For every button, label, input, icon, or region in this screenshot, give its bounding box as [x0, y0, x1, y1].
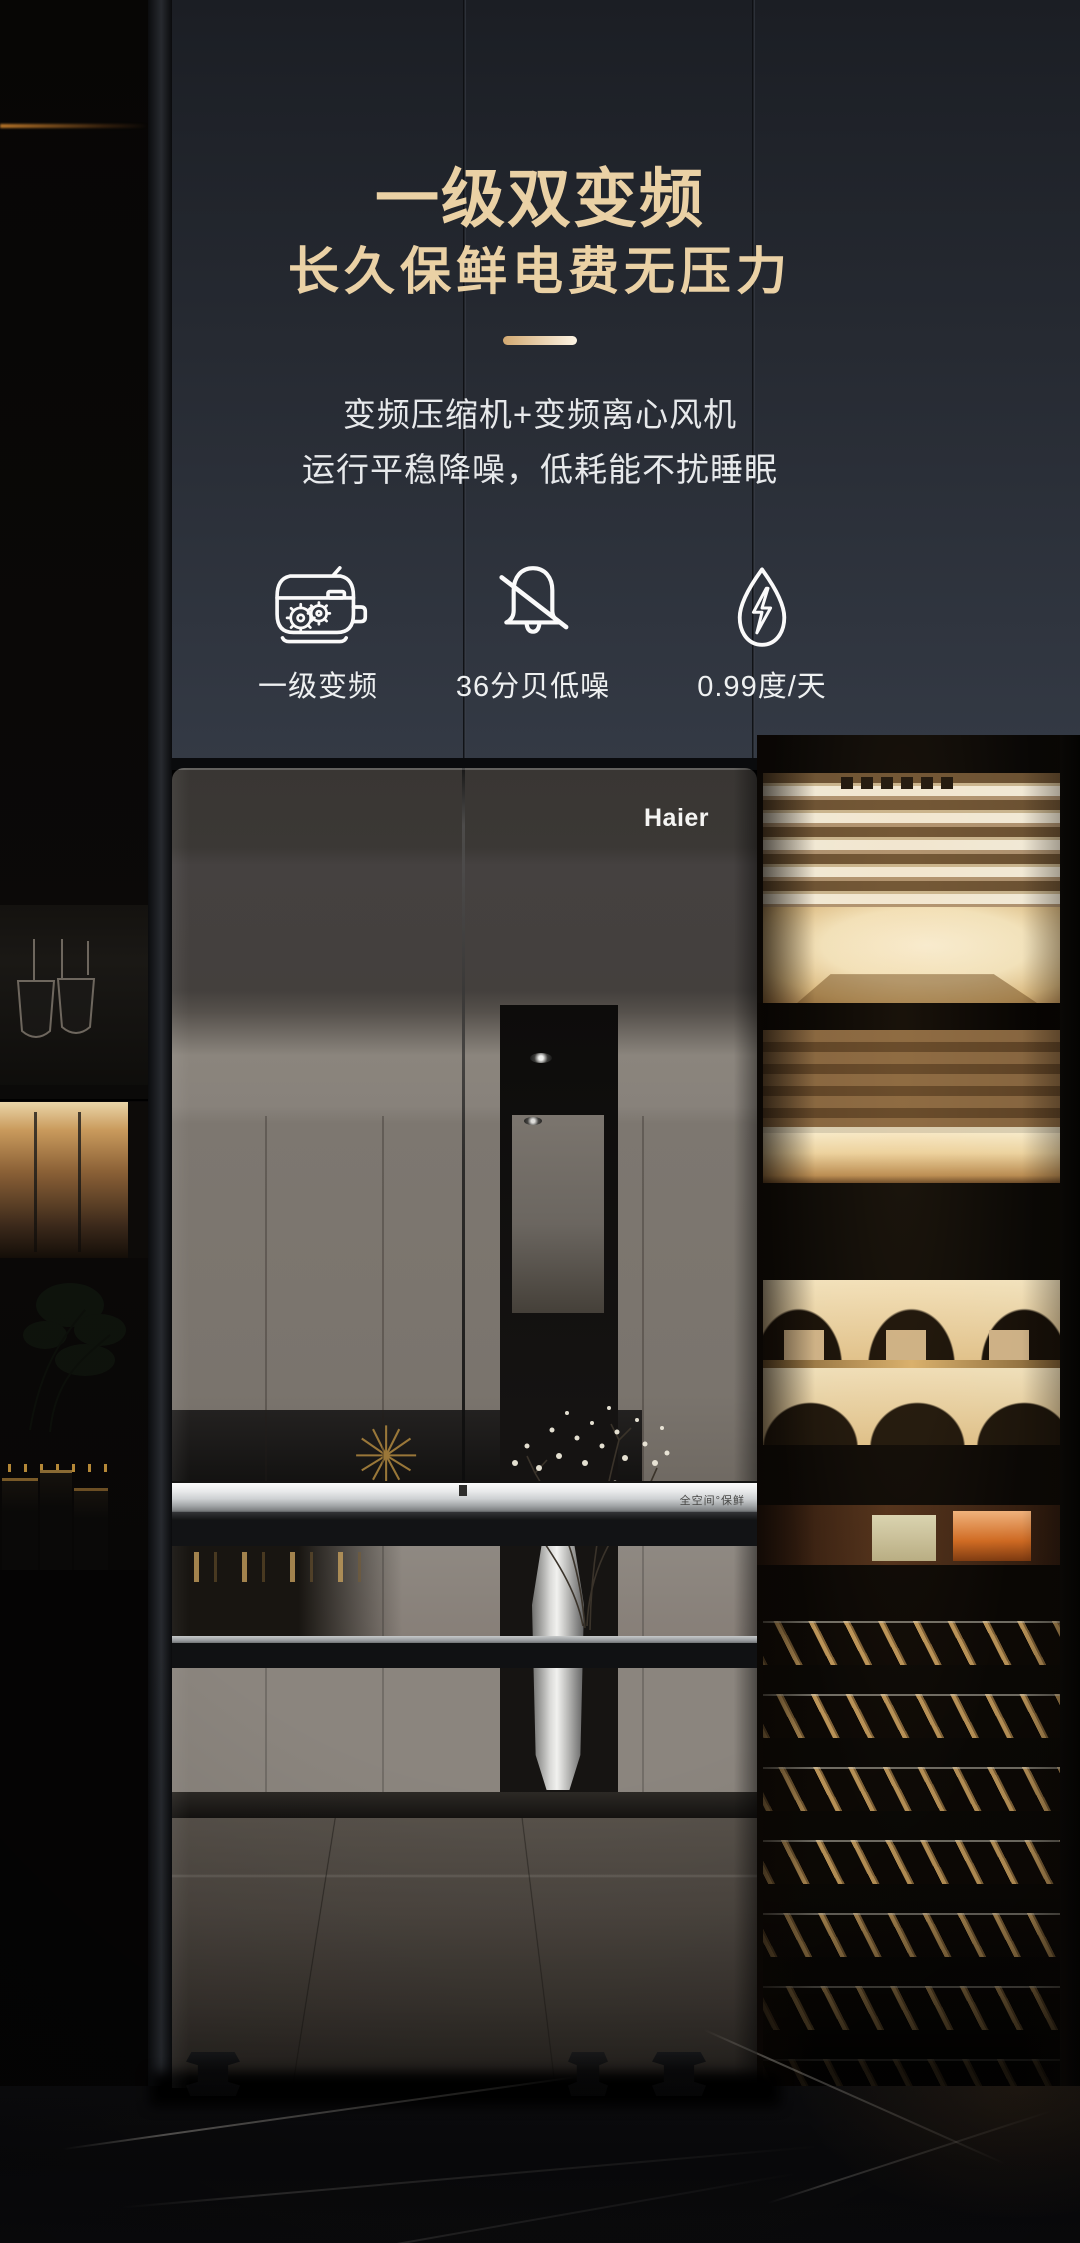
shelf-board: [0, 1085, 148, 1101]
drawer-gap: [172, 1643, 757, 1668]
bottle: [2, 1478, 38, 1570]
bottle: [40, 1470, 72, 1570]
handle-bar-notch: [459, 1485, 467, 1496]
niche-side-panel: [128, 1102, 148, 1258]
marketing-copy: 一级双变频 长久保鲜电费无压力 变频压缩机+变频离心风机 运行平稳降噪，低耗能不…: [0, 0, 1080, 760]
hanging-rod: [78, 1112, 81, 1252]
energy-drop-icon: [652, 543, 872, 651]
freshness-badge: 全空间°保鲜: [680, 1492, 745, 1508]
feature-low-noise: 36分贝低噪: [423, 543, 643, 705]
cabinet-shading: [757, 735, 1080, 2107]
headline-line-1: 一级双变频: [0, 148, 1080, 240]
door-handle-bar: 全空间°保鲜: [172, 1481, 757, 1512]
wine-cabinet: [757, 735, 1080, 2107]
handle-recess: [172, 1512, 757, 1520]
hanging-rod: [34, 1112, 37, 1252]
description-line-2: 运行平稳降噪，低耗能不扰睡眠: [0, 443, 1080, 491]
drawer-gap: [172, 1520, 757, 1546]
floor-warm-glow: [760, 2086, 1080, 2243]
marble-vein: [121, 2145, 819, 2208]
feature-inverter: 一级变频: [208, 543, 428, 705]
bottle: [74, 1488, 108, 1570]
backlit-niche: [0, 1102, 128, 1258]
feature-energy: 0.99度/天: [652, 543, 872, 705]
drawer-trim: [172, 1636, 757, 1643]
headline-line-2: 长久保鲜电费无压力: [0, 230, 1080, 304]
refrigerator: Haier: [172, 768, 757, 2088]
left-base-shadow: [0, 1570, 148, 2110]
promo-scene: Haier: [0, 0, 1080, 2243]
mute-bell-icon: [423, 543, 643, 651]
compressor-icon: [208, 543, 428, 651]
cabinet-right-frame: [1060, 735, 1080, 2107]
plant-silhouette: [0, 1250, 135, 1435]
description-line-1: 变频压缩机+变频离心风机: [0, 388, 1080, 436]
gold-divider: [503, 336, 577, 345]
marble-floor: [0, 2086, 1080, 2243]
bottle-group: [0, 1462, 122, 1572]
glass-shelf: [0, 905, 148, 1090]
feature-label: 36分贝低噪: [423, 663, 643, 705]
drawer-edge-shading: [172, 1546, 757, 2088]
feature-label: 0.99度/天: [652, 663, 872, 705]
feature-label: 一级变频: [208, 663, 428, 705]
wine-glasses: [6, 935, 106, 1065]
